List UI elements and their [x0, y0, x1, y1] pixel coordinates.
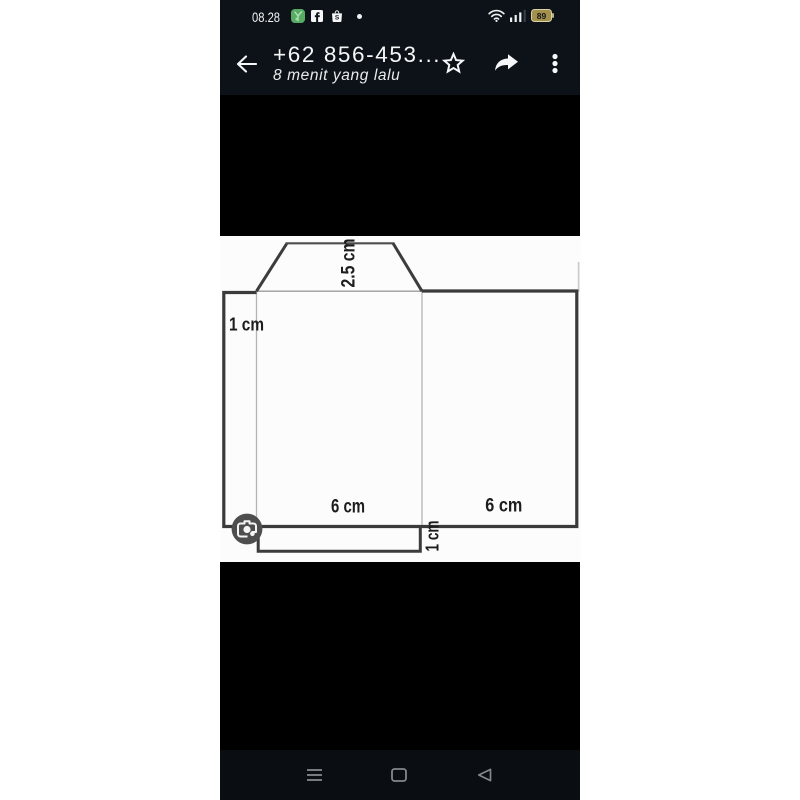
svg-text:89: 89: [537, 11, 547, 21]
svg-text:1 cm: 1 cm: [229, 315, 264, 335]
svg-text:6 cm: 6 cm: [485, 496, 522, 517]
svg-text:1 cm: 1 cm: [423, 521, 443, 552]
svg-text:6 cm: 6 cm: [331, 497, 365, 518]
svg-text:S: S: [335, 15, 340, 22]
svg-text:2.5 cm: 2.5 cm: [339, 239, 360, 288]
